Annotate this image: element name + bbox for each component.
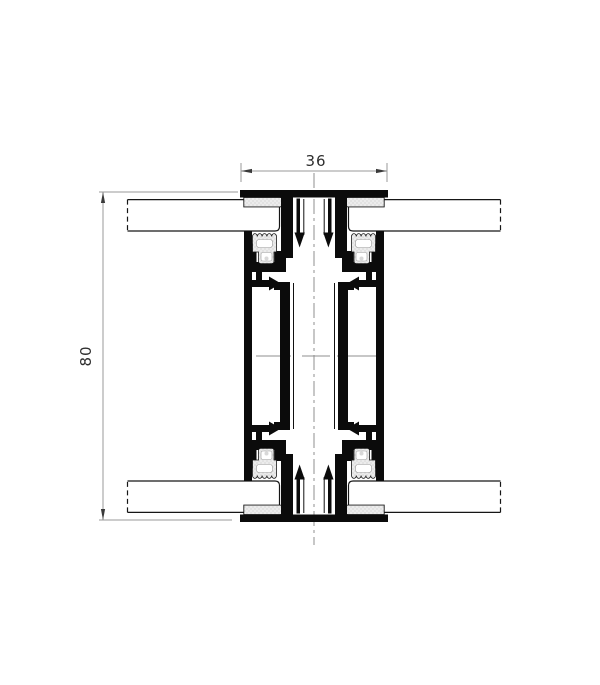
quadrant-top-right	[323, 197, 500, 291]
dim-label-height: 80	[77, 345, 95, 366]
dim-arrow-top	[101, 192, 105, 203]
dim-arrow-bottom	[101, 509, 105, 520]
quadrant-bottom-left	[128, 422, 305, 516]
technical-drawing-canvas: 36 80	[0, 0, 600, 685]
dim-arrow-right	[376, 169, 387, 173]
quadrant-bottom-right	[323, 422, 500, 516]
dim-label-width: 36	[305, 152, 326, 170]
dim-arrow-left	[241, 169, 252, 173]
technical-drawing-page: 36 80	[0, 0, 600, 685]
height-dimension: 80	[77, 192, 238, 520]
quadrant-top-left	[128, 197, 305, 291]
